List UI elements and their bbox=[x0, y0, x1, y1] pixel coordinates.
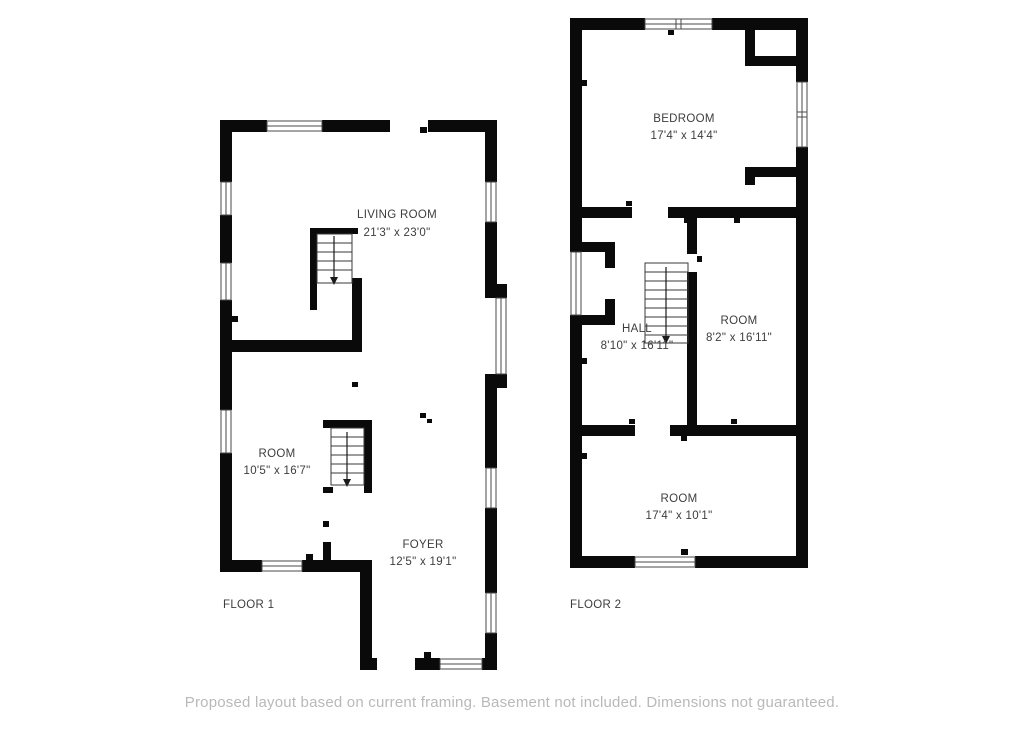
floor2-bedroom-name: BEDROOM bbox=[653, 113, 715, 125]
floor2-hall-name: HALL bbox=[622, 323, 652, 335]
floor1-exterior-walls bbox=[220, 120, 507, 670]
floor2-room-bottom-dims: 17'4" x 10'1" bbox=[646, 510, 713, 522]
floor2-bedroom-dims: 17'4" x 14'4" bbox=[651, 130, 718, 142]
floor1-room-dims: 10'5" x 16'7" bbox=[244, 465, 311, 477]
floor1-stairs-room bbox=[323, 420, 372, 493]
window-icon bbox=[440, 659, 482, 669]
window-icon bbox=[221, 410, 231, 453]
floor1-foyer-name: FOYER bbox=[402, 539, 443, 551]
window-icon bbox=[645, 19, 712, 29]
floor1-foyer-dims: 12'5" x 19'1" bbox=[390, 556, 457, 568]
window-icon bbox=[262, 561, 302, 571]
stairs-down-arrow-icon bbox=[662, 267, 670, 344]
window-icon bbox=[486, 593, 496, 633]
floor1-living-room-name: LIVING ROOM bbox=[357, 209, 437, 221]
floor2-hall-dims: 8'10" x 16'11" bbox=[601, 340, 674, 352]
floor1-room-name: ROOM bbox=[259, 448, 296, 460]
floor2-interior-walls bbox=[582, 30, 796, 441]
floor1-stairs-living-room bbox=[310, 228, 362, 342]
floor1-label: FLOOR 1 bbox=[223, 599, 274, 611]
floor2-label: FLOOR 2 bbox=[570, 599, 621, 611]
floor2-plan: BEDROOM 17'4" x 14'4" HALL 8'10" x 16'11… bbox=[570, 18, 808, 611]
floor2-room-bottom-name: ROOM bbox=[661, 493, 698, 505]
window-icon bbox=[267, 121, 322, 131]
window-icon bbox=[496, 298, 506, 374]
window-icon bbox=[797, 82, 807, 147]
window-icon bbox=[221, 182, 231, 215]
window-icon bbox=[486, 182, 496, 222]
disclaimer-text: Proposed layout based on current framing… bbox=[185, 694, 839, 711]
window-icon bbox=[221, 263, 231, 300]
stairs-down-arrow-icon bbox=[343, 432, 351, 487]
floor1-interior-walls bbox=[232, 316, 432, 560]
floor-plan-page: LIVING ROOM 21'3" x 23'0" ROOM 10'5" x 1… bbox=[0, 0, 1024, 731]
floor1-living-room-dims: 21'3" x 23'0" bbox=[364, 227, 431, 239]
floor-plan-drawing: LIVING ROOM 21'3" x 23'0" ROOM 10'5" x 1… bbox=[0, 0, 1024, 731]
window-icon bbox=[571, 252, 581, 315]
floor2-room-mid-dims: 8'2" x 16'11" bbox=[706, 332, 772, 344]
window-icon bbox=[635, 557, 695, 567]
window-icon bbox=[486, 468, 496, 508]
floor1-plan: LIVING ROOM 21'3" x 23'0" ROOM 10'5" x 1… bbox=[220, 120, 507, 670]
floor2-room-mid-name: ROOM bbox=[721, 315, 758, 327]
